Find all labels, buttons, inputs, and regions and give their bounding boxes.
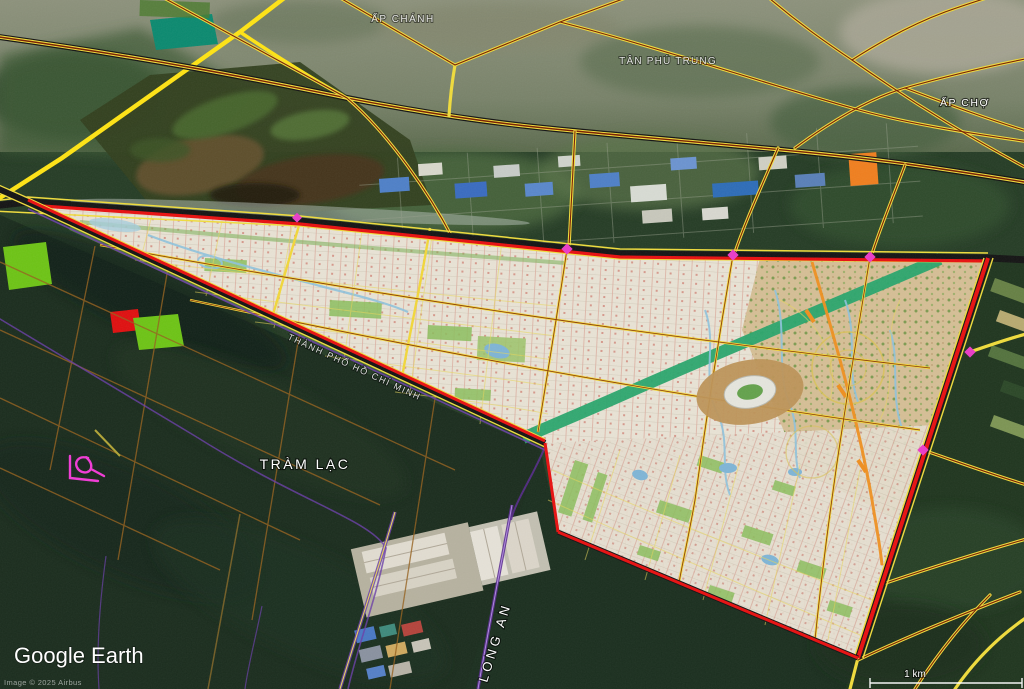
- scale-bar-label: 1 km: [904, 669, 926, 680]
- label-ap-cho: ẤP CHỢ: [940, 96, 990, 109]
- svg-text:Google Earth: Google Earth: [14, 643, 144, 668]
- imagery-attribution: Image © 2025 Airbus: [4, 678, 82, 687]
- satellite-map[interactable]: ẤP CHÁNH TÂN PHÚ TRUNG ẤP CHỢ TRÀM LẠC L…: [0, 0, 1024, 689]
- label-tan-phu-trung: TÂN PHÚ TRUNG: [619, 54, 717, 67]
- google-earth-logo: Google Earth: [14, 643, 144, 668]
- label-ap-chanh: ẤP CHÁNH: [371, 12, 435, 25]
- satellite-grain: [0, 0, 1024, 689]
- label-tram-lac: TRÀM LẠC: [260, 456, 351, 472]
- google-earth-viewport[interactable]: ẤP CHÁNH TÂN PHÚ TRUNG ẤP CHỢ TRÀM LẠC L…: [0, 0, 1024, 689]
